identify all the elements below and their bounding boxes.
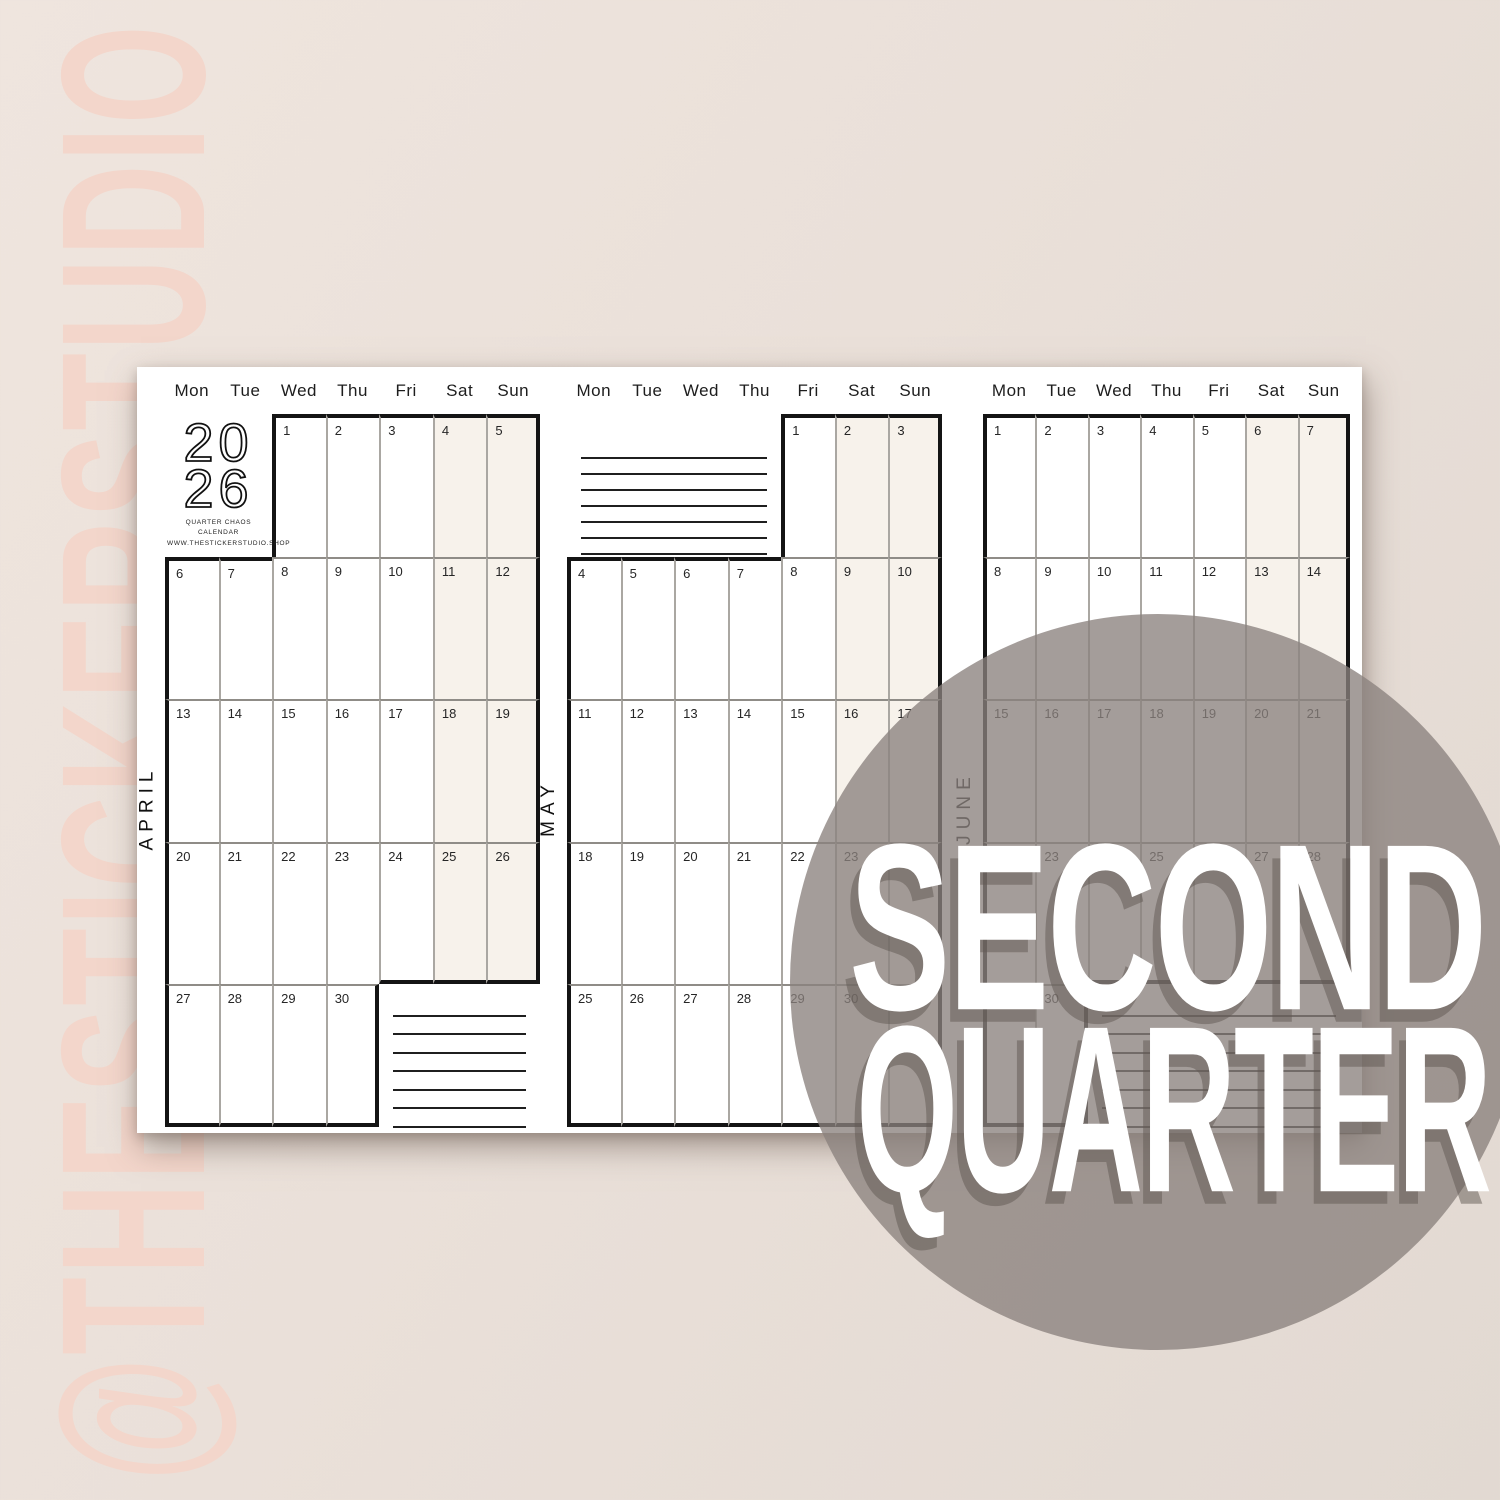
day-number: 13	[169, 701, 219, 721]
day-number: 28	[730, 986, 782, 1006]
day-number: 18	[435, 701, 487, 721]
date-cell: 9	[326, 557, 380, 700]
month-label-april: APRIL	[136, 414, 158, 1127]
date-cell: 19	[621, 842, 675, 985]
note-line	[581, 475, 767, 491]
date-cell: 1	[781, 414, 835, 557]
day-header-row: MonTueWedThuFriSatSun	[983, 381, 1350, 401]
day-number: 4	[571, 561, 621, 581]
date-cell: 8	[781, 557, 835, 700]
note-line	[393, 1072, 526, 1091]
date-cell: 20	[165, 842, 219, 985]
date-cell: 17	[379, 699, 433, 842]
date-cell: 9	[835, 557, 889, 700]
date-cell: 21	[219, 842, 273, 985]
day-number: 5	[1195, 418, 1245, 438]
logo-year-bottom: 26	[167, 466, 270, 512]
day-number: 9	[1037, 559, 1087, 579]
day-number: 7	[221, 561, 273, 581]
day-number: 25	[571, 986, 621, 1006]
overlay-title-line2: QUARTER	[856, 974, 1490, 1247]
note-line	[393, 1109, 526, 1128]
day-number: 2	[1037, 418, 1087, 438]
day-header-label: Fri	[379, 381, 433, 401]
date-cell: 27	[674, 984, 728, 1127]
day-number: 25	[435, 844, 487, 864]
day-number: 26	[488, 844, 536, 864]
day-number: 21	[221, 844, 273, 864]
day-number: 12	[1195, 559, 1245, 579]
day-number: 7	[730, 561, 782, 581]
day-number: 12	[623, 701, 675, 721]
day-number: 2	[837, 418, 889, 438]
day-number: 8	[274, 559, 326, 579]
day-number: 7	[1300, 418, 1346, 438]
day-header-label: Thu	[326, 381, 380, 401]
calendar-logo: 20 26 QUARTER CHAOS CALENDAR WWW.THESTIC…	[167, 416, 270, 555]
day-number: 29	[274, 986, 326, 1006]
day-number: 11	[571, 701, 621, 721]
day-number: 16	[328, 701, 380, 721]
day-number: 27	[676, 986, 728, 1006]
day-number: 13	[1247, 559, 1297, 579]
date-cell: 24	[379, 842, 433, 985]
date-cell: 27	[165, 984, 219, 1127]
day-header-label: Sat	[1245, 381, 1297, 401]
day-number: 9	[837, 559, 889, 579]
date-cell: 16	[326, 699, 380, 842]
day-number: 2	[328, 418, 380, 438]
day-header-label: Thu	[728, 381, 782, 401]
date-cell: 2	[835, 414, 889, 557]
day-number: 20	[676, 844, 728, 864]
day-header-label: Sat	[835, 381, 889, 401]
note-line	[581, 523, 767, 539]
date-cell: 10	[888, 557, 942, 700]
day-number: 6	[169, 561, 219, 581]
date-cell: 8	[272, 557, 326, 700]
day-header-label: Tue	[219, 381, 273, 401]
day-header-label: Wed	[1088, 381, 1140, 401]
date-cell: 23	[326, 842, 380, 985]
day-number: 13	[676, 701, 728, 721]
day-number: 16	[837, 701, 889, 721]
notes-lines	[581, 443, 767, 555]
note-line	[393, 1017, 526, 1036]
date-cell: 14	[728, 699, 782, 842]
day-header-label: Mon	[983, 381, 1035, 401]
date-cell: 12	[486, 557, 540, 700]
date-cell: 13	[674, 699, 728, 842]
day-number: 23	[328, 844, 380, 864]
date-cell: 11	[567, 699, 621, 842]
day-number: 20	[169, 844, 219, 864]
day-number: 28	[221, 986, 273, 1006]
date-cell: 19	[486, 699, 540, 842]
day-number: 21	[730, 844, 782, 864]
day-number: 27	[169, 986, 219, 1006]
day-number: 10	[381, 559, 433, 579]
date-cell: 2	[326, 414, 380, 557]
date-cell: 4	[433, 414, 487, 557]
date-cell: 6	[674, 557, 728, 700]
day-header-label: Wed	[272, 381, 326, 401]
date-cell: 7	[1298, 414, 1350, 557]
note-line	[581, 539, 767, 555]
day-number: 8	[987, 559, 1035, 579]
date-cell: 1	[272, 414, 326, 557]
date-cell: 1	[983, 414, 1035, 557]
day-number: 15	[274, 701, 326, 721]
date-cell: 15	[272, 699, 326, 842]
month-label-text: APRIL	[136, 765, 158, 850]
day-number: 24	[381, 844, 433, 864]
day-number: 17	[381, 701, 433, 721]
date-cell: 18	[433, 699, 487, 842]
date-cell: 3	[1088, 414, 1140, 557]
date-cell: 26	[621, 984, 675, 1127]
day-number: 4	[1142, 418, 1192, 438]
day-number: 19	[623, 844, 675, 864]
day-header-label: Thu	[1140, 381, 1192, 401]
notes-lines	[393, 998, 526, 1128]
day-number: 19	[488, 701, 536, 721]
day-number: 1	[987, 418, 1035, 438]
day-header-row: MonTueWedThuFriSatSun	[567, 381, 942, 401]
logo-website: WWW.THESTICKERSTUDIO.SHOP	[167, 539, 270, 549]
date-cell: 21	[728, 842, 782, 985]
note-line	[393, 998, 526, 1017]
note-line	[393, 1054, 526, 1073]
month-label-text: MAY	[538, 779, 560, 837]
day-header-label: Sun	[888, 381, 942, 401]
day-header-label: Wed	[674, 381, 728, 401]
day-number: 11	[435, 559, 487, 579]
product-image: { "watermark": { "text": "@THESTICKERSTU…	[0, 0, 1500, 1500]
day-header-label: Tue	[621, 381, 675, 401]
day-number: 18	[571, 844, 621, 864]
date-cell: 26	[486, 842, 540, 985]
day-header-label: Mon	[567, 381, 621, 401]
day-header-label: Fri	[781, 381, 835, 401]
date-cell: 4	[1140, 414, 1192, 557]
logo-tagline: QUARTER CHAOS CALENDAR	[167, 518, 270, 539]
day-number: 6	[1247, 418, 1297, 438]
note-line	[581, 443, 767, 459]
date-cell: 13	[165, 699, 219, 842]
note-line	[581, 507, 767, 523]
date-cell: 25	[433, 842, 487, 985]
date-cell: 22	[272, 842, 326, 985]
day-number: 1	[785, 418, 835, 438]
date-cell: 7	[728, 557, 782, 700]
date-cell: 20	[674, 842, 728, 985]
date-cell: 25	[567, 984, 621, 1127]
day-number: 10	[1090, 559, 1140, 579]
day-header-label: Sun	[486, 381, 540, 401]
date-cell: 29	[272, 984, 326, 1127]
date-cell: 7	[219, 557, 273, 700]
date-cell: 5	[1193, 414, 1245, 557]
date-cell: 30	[326, 984, 380, 1127]
day-header-row: MonTueWedThuFriSatSun	[165, 381, 540, 401]
date-cell: 5	[486, 414, 540, 557]
date-cell: 2	[1035, 414, 1087, 557]
date-cell: 5	[621, 557, 675, 700]
day-number: 6	[676, 561, 728, 581]
day-number: 22	[274, 844, 326, 864]
day-number: 3	[1090, 418, 1140, 438]
day-header-label: Sat	[433, 381, 487, 401]
date-cell: 14	[219, 699, 273, 842]
note-line	[393, 1035, 526, 1054]
note-line	[393, 1091, 526, 1110]
day-number: 10	[890, 559, 938, 579]
day-number: 1	[276, 418, 326, 438]
date-cell: 3	[888, 414, 942, 557]
day-header-label: Fri	[1193, 381, 1245, 401]
date-cell: 4	[567, 557, 621, 700]
day-number: 30	[328, 986, 376, 1006]
date-cell: 12	[621, 699, 675, 842]
day-header-label: Sun	[1298, 381, 1350, 401]
day-number: 8	[783, 559, 835, 579]
note-line	[581, 459, 767, 475]
note-line	[581, 491, 767, 507]
day-number: 11	[1142, 559, 1192, 579]
day-number: 3	[381, 418, 433, 438]
day-number: 14	[730, 701, 782, 721]
date-cell: 28	[219, 984, 273, 1127]
date-cell: 6	[1245, 414, 1297, 557]
month-label-may: MAY	[538, 414, 560, 1127]
day-number: 5	[623, 561, 675, 581]
day-number: 14	[1300, 559, 1346, 579]
date-cell: 18	[567, 842, 621, 985]
day-number: 9	[328, 559, 380, 579]
date-cell: 11	[433, 557, 487, 700]
date-cell: 10	[379, 557, 433, 700]
day-header-label: Tue	[1035, 381, 1087, 401]
date-cell: 6	[165, 557, 219, 700]
day-number: 5	[488, 418, 536, 438]
day-number: 4	[435, 418, 487, 438]
day-number: 26	[623, 986, 675, 1006]
day-number: 15	[783, 701, 835, 721]
date-cell: 3	[379, 414, 433, 557]
day-number: 14	[221, 701, 273, 721]
day-number: 12	[488, 559, 536, 579]
day-header-label: Mon	[165, 381, 219, 401]
date-cell: 28	[728, 984, 782, 1127]
day-number: 3	[890, 418, 938, 438]
